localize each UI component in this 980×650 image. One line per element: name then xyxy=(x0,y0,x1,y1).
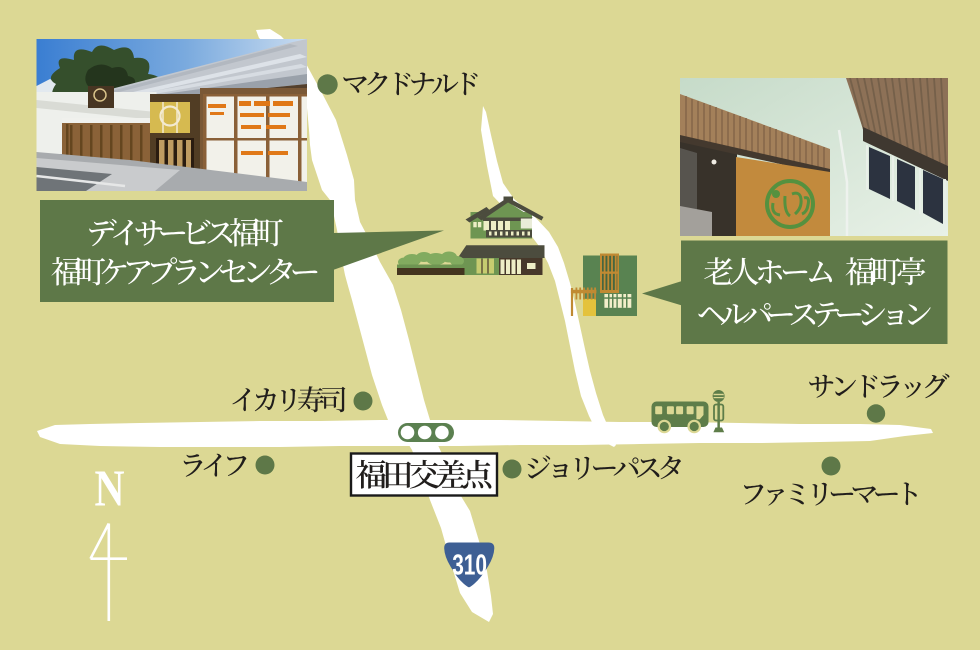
svg-text:310: 310 xyxy=(452,549,487,581)
svg-text:N: N xyxy=(94,460,124,517)
